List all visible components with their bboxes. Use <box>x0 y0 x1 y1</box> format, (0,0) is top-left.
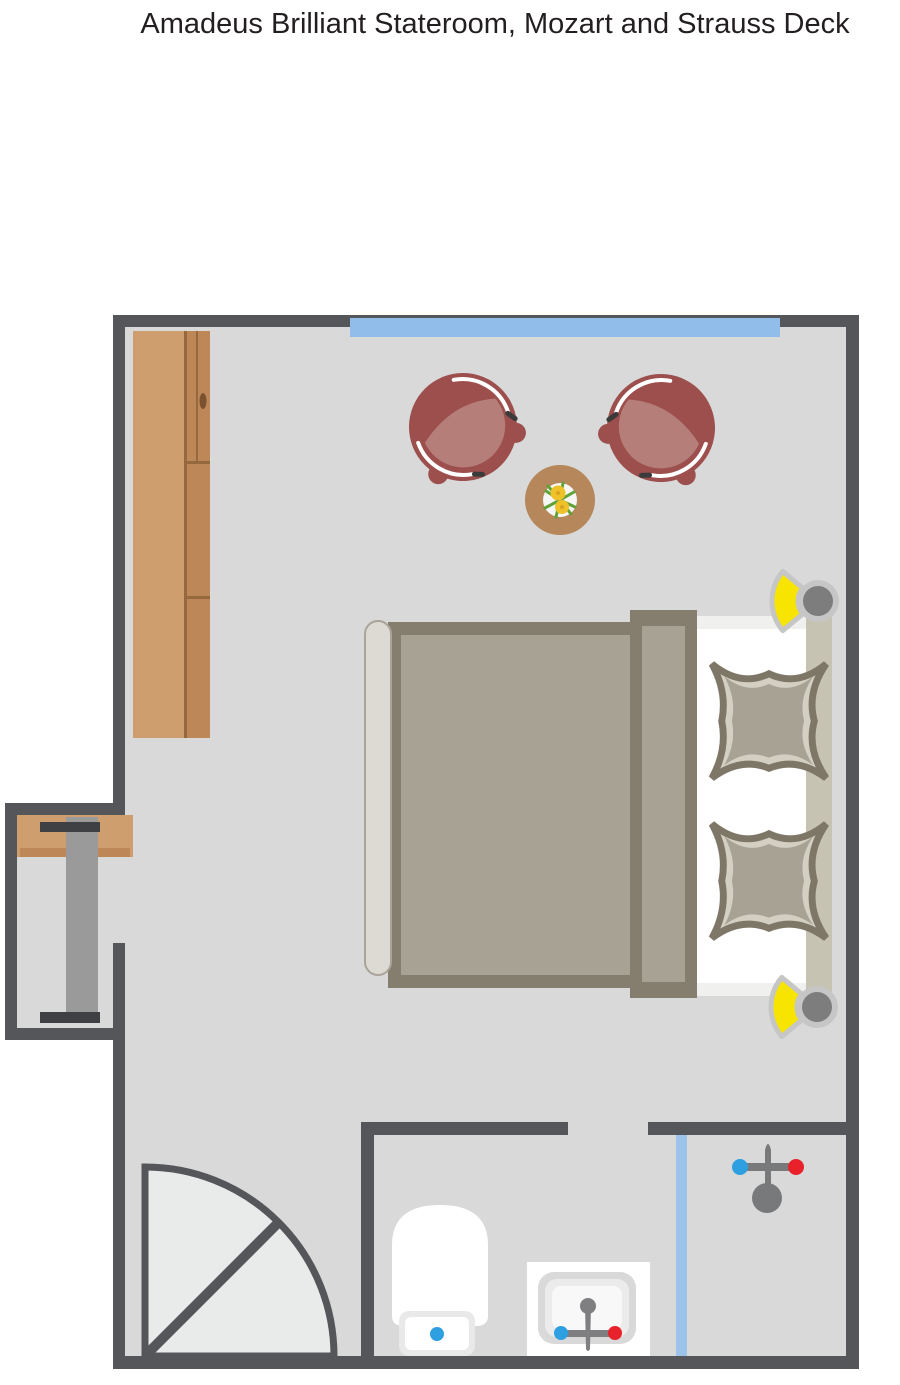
divider <box>184 331 187 738</box>
wall-left-upper <box>113 315 125 815</box>
bathroom-wall-top-right <box>648 1122 846 1135</box>
bed-mattress <box>694 616 806 996</box>
lamp-head <box>803 586 833 616</box>
bed-pillow-bottom <box>712 824 826 938</box>
niche-wall-left <box>5 803 17 1040</box>
pillow-center <box>724 676 813 765</box>
pillow-center <box>724 836 813 925</box>
bathroom-wall-left <box>361 1122 374 1356</box>
wall-left-lower <box>113 943 125 1369</box>
niche-wall-bottom <box>5 1028 125 1040</box>
wardrobe-handle <box>200 393 207 409</box>
bed-pillow-top <box>712 664 826 778</box>
flower-core <box>560 505 564 509</box>
faucet-spout <box>585 1306 591 1351</box>
hot-tap-dot <box>608 1326 622 1340</box>
flower-core <box>556 491 560 495</box>
toilet-bowl <box>392 1205 488 1326</box>
floor-plan-drawing <box>0 0 900 1385</box>
floor-plan-canvas: Amadeus Brilliant Stateroom, Mozart and … <box>0 0 900 1385</box>
desk-chair <box>66 817 98 1020</box>
toilet <box>392 1205 488 1356</box>
bed-footboard <box>365 621 391 975</box>
bathroom-wall-top-left <box>361 1122 568 1135</box>
desk-handle-bar <box>40 822 100 832</box>
lamp-head <box>802 992 832 1022</box>
chair-back-bar <box>40 1012 100 1023</box>
shower-cold-dot <box>732 1159 748 1175</box>
double-bed <box>365 610 832 1014</box>
shower-head <box>752 1183 782 1213</box>
cold-tap-dot <box>554 1326 568 1340</box>
washbasin <box>527 1262 650 1356</box>
wall-right <box>846 315 859 1369</box>
wardrobe <box>133 331 210 738</box>
divider <box>185 596 210 599</box>
side-table <box>525 465 595 535</box>
shower-hot-dot <box>788 1159 804 1175</box>
duvet-fold <box>642 626 685 982</box>
shower-glass-panel <box>676 1135 687 1356</box>
toilet-flush-button <box>430 1327 444 1341</box>
divider <box>196 331 198 461</box>
niche-wall-top <box>5 803 125 815</box>
panoramic-window <box>350 318 780 337</box>
divider <box>185 461 210 464</box>
wall-bottom <box>113 1356 859 1369</box>
